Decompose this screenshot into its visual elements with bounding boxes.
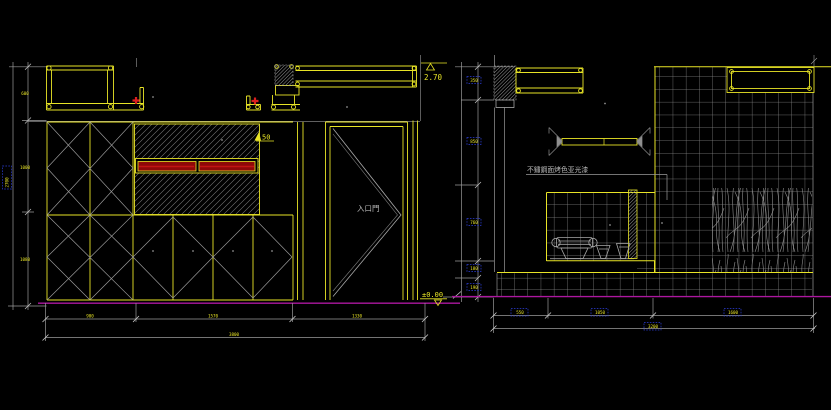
dim-label[interactable]: 350: [470, 78, 478, 83]
bar-bracket-icon: [549, 128, 650, 156]
cad-viewport: 600 1000 1080 2700: [0, 0, 831, 410]
dim-label[interactable]: 190: [470, 285, 478, 290]
dim-label-total[interactable]: 3200: [648, 324, 659, 329]
grass-decor: [712, 188, 812, 272]
dim-label[interactable]: 1000: [20, 165, 31, 170]
wall-frame-right: [727, 68, 814, 93]
door-label: 入口門: [357, 204, 380, 213]
left-wall[interactable]: 50 入口門: [27, 96, 420, 300]
right-bottom-dims: 550 1050 1600 3200: [491, 298, 817, 333]
selected-side-note[interactable]: 2700: [3, 166, 12, 189]
canopy-hatch-block: [275, 65, 293, 86]
red-cross-markers: [133, 97, 259, 105]
level-floor-label: ±0.00: [422, 291, 443, 299]
cad-canvas[interactable]: 600 1000 1080 2700: [0, 0, 831, 410]
alcove-hatch-column: [629, 190, 638, 259]
dim-label[interactable]: 760: [470, 220, 478, 225]
level-marker-top[interactable]: 2.70: [421, 63, 447, 82]
dim-label[interactable]: 180: [470, 266, 478, 271]
entrance-door[interactable]: 入口門: [326, 122, 408, 300]
left-canopy-frames[interactable]: [47, 65, 417, 110]
level-top-label: 2.70: [424, 73, 443, 82]
dim-label[interactable]: 1080: [20, 257, 31, 262]
right-wall[interactable]: 不鏽鋼面烤色亚光漆: [494, 55, 831, 296]
handle-note-label: 50: [262, 134, 270, 142]
dim-label[interactable]: 1330: [352, 314, 363, 319]
right-elevation[interactable]: 350 850 760 180 190: [443, 55, 831, 333]
dim-label[interactable]: 600: [21, 91, 29, 96]
left-elevation[interactable]: 600 1000 1080 2700: [3, 55, 462, 341]
wall-frame-left: [516, 68, 583, 93]
dim-label-total[interactable]: 3800: [229, 332, 240, 337]
left-bottom-dims: 900 1570 1330 3800: [43, 303, 429, 341]
material-note-label: 不鏽鋼面烤色亚光漆: [527, 165, 588, 174]
dim-label-rotated: 2700: [5, 177, 10, 188]
dim-label[interactable]: 1600: [728, 310, 739, 315]
dim-label[interactable]: 1570: [208, 314, 219, 319]
red-strip-band: [136, 159, 259, 174]
left-dim-column: [8, 62, 47, 310]
dim-label[interactable]: 900: [86, 314, 94, 319]
wall-hatch-column: [494, 66, 516, 100]
right-vertical-dim-labels: 350 850 760 180 190: [467, 77, 481, 291]
dim-label[interactable]: 550: [516, 310, 524, 315]
dim-label[interactable]: 1050: [595, 310, 606, 315]
towel-bar[interactable]: [549, 128, 650, 156]
dim-label[interactable]: 850: [470, 139, 478, 144]
